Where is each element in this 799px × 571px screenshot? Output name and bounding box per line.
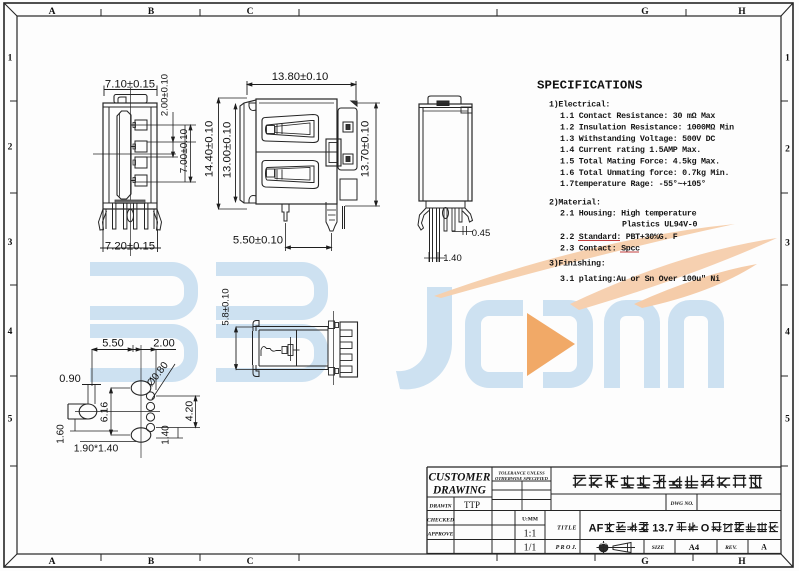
svg-text:DWG NO.: DWG NO. [669, 501, 693, 507]
svg-text:REV.: REV. [724, 545, 737, 551]
svg-text:5.8±0.10: 5.8±0.10 [221, 288, 232, 325]
svg-text:0.45: 0.45 [472, 228, 491, 239]
svg-text:1: 1 [785, 54, 790, 64]
svg-text:13.70±0.10: 13.70±0.10 [360, 121, 372, 177]
svg-text:1.40: 1.40 [161, 425, 172, 445]
svg-text:H: H [738, 557, 746, 567]
svg-text:1.40: 1.40 [443, 253, 462, 264]
svg-text:6.16: 6.16 [99, 402, 111, 423]
svg-text:4.20: 4.20 [184, 401, 196, 422]
svg-text:5.50±0.10: 5.50±0.10 [233, 235, 283, 247]
svg-text:3)Finishing:: 3)Finishing: [549, 259, 605, 269]
svg-text:A: A [49, 7, 56, 17]
svg-text:TOLERANCE UNLESS: TOLERANCE UNLESS [498, 471, 545, 476]
svg-text:13.00±0.10: 13.00±0.10 [222, 122, 234, 178]
svg-text:5: 5 [785, 415, 790, 425]
svg-text:1.4 Current rating 1.5AMP Max.: 1.4 Current rating 1.5AMP Max. [560, 145, 701, 155]
svg-text:5: 5 [8, 415, 13, 425]
svg-text:13.80±0.10: 13.80±0.10 [272, 71, 328, 83]
svg-text:4: 4 [8, 327, 13, 337]
svg-text:B: B [148, 557, 155, 567]
svg-text:5.50: 5.50 [102, 338, 123, 350]
svg-text:4: 4 [785, 328, 790, 338]
svg-text:3: 3 [785, 239, 790, 249]
svg-text:G: G [641, 557, 649, 567]
svg-text:2: 2 [8, 143, 13, 153]
svg-text:2.00: 2.00 [153, 338, 174, 350]
svg-text:2.1 Housing: High temperature: 2.1 Housing: High temperature [560, 209, 697, 219]
svg-text:14.40±0.10: 14.40±0.10 [204, 121, 216, 177]
svg-text:1.6 Total Unmating force: 0.7k: 1.6 Total Unmating force: 0.7kg Min. [560, 168, 729, 178]
svg-text:U:MM: U:MM [522, 517, 538, 523]
svg-text:1.1 Contact Resistance: 30 mΩ: 1.1 Contact Resistance: 30 mΩ Max [560, 111, 715, 121]
svg-text:1.2 Insulation Resistance: 100: 1.2 Insulation Resistance: 1000MΩ Min [560, 123, 734, 133]
svg-text:CUSTOMER: CUSTOMER [429, 472, 491, 484]
svg-text:P R O J.: P R O J. [556, 545, 577, 551]
svg-text:1.5 Total Mating Force: 4.5kg: 1.5 Total Mating Force: 4.5kg Max. [560, 157, 720, 167]
svg-text:TTP: TTP [464, 500, 480, 510]
svg-text:7.20±0.15: 7.20±0.15 [105, 241, 155, 253]
svg-text:2: 2 [785, 145, 790, 155]
svg-text:H: H [738, 7, 746, 17]
svg-text:7.10±0.15: 7.10±0.15 [105, 79, 155, 91]
svg-text:1: 1 [8, 54, 13, 64]
svg-text:0.90: 0.90 [59, 373, 80, 385]
svg-text:TITLE: TITLE [557, 526, 577, 532]
svg-text:2.00±0.10: 2.00±0.10 [160, 74, 171, 116]
svg-text:G: G [641, 7, 649, 17]
svg-text:SIZE: SIZE [652, 545, 665, 551]
svg-text:APPROVE: APPROVE [427, 532, 454, 538]
svg-text:C: C [247, 557, 254, 567]
svg-text:A: A [49, 557, 56, 567]
svg-text:A4: A4 [689, 542, 700, 552]
svg-text:7.00±0.10: 7.00±0.10 [179, 128, 190, 173]
svg-text:1.60: 1.60 [56, 424, 67, 444]
svg-text:1)Electrical:: 1)Electrical: [549, 100, 610, 110]
svg-text:Plastics UL94V-0: Plastics UL94V-0 [622, 220, 697, 230]
svg-text:1.90*1.40: 1.90*1.40 [74, 444, 119, 455]
svg-text:B: B [148, 7, 155, 17]
svg-text:CHECKED: CHECKED [427, 518, 454, 524]
svg-text:A: A [761, 543, 767, 552]
svg-text:AF: AF [589, 523, 604, 535]
svg-text:1/1: 1/1 [524, 543, 537, 554]
svg-text:C: C [247, 7, 254, 17]
svg-text:13.7: 13.7 [652, 523, 673, 535]
svg-text:O: O [701, 523, 710, 535]
svg-text:1.7temperature Rage: -55°~+105: 1.7temperature Rage: -55°~+105° [560, 180, 706, 189]
svg-text:SPECIFICATIONS: SPECIFICATIONS [537, 79, 643, 93]
svg-text:2)Material:: 2)Material: [549, 198, 601, 208]
svg-text:1:1: 1:1 [524, 529, 537, 540]
svg-text:3.1 plating:Au or Sn Over 100u: 3.1 plating:Au or Sn Over 100u" Ni [560, 274, 720, 284]
svg-text:1.3 Withstanding Voltage: 500V: 1.3 Withstanding Voltage: 500V DC [560, 134, 715, 144]
svg-text:3: 3 [8, 238, 13, 248]
svg-text:DRAWING: DRAWING [432, 485, 487, 497]
svg-text:OTHERWISE SPECIFIED: OTHERWISE SPECIFIED [495, 476, 549, 481]
svg-text:DRAWIN: DRAWIN [428, 504, 452, 510]
